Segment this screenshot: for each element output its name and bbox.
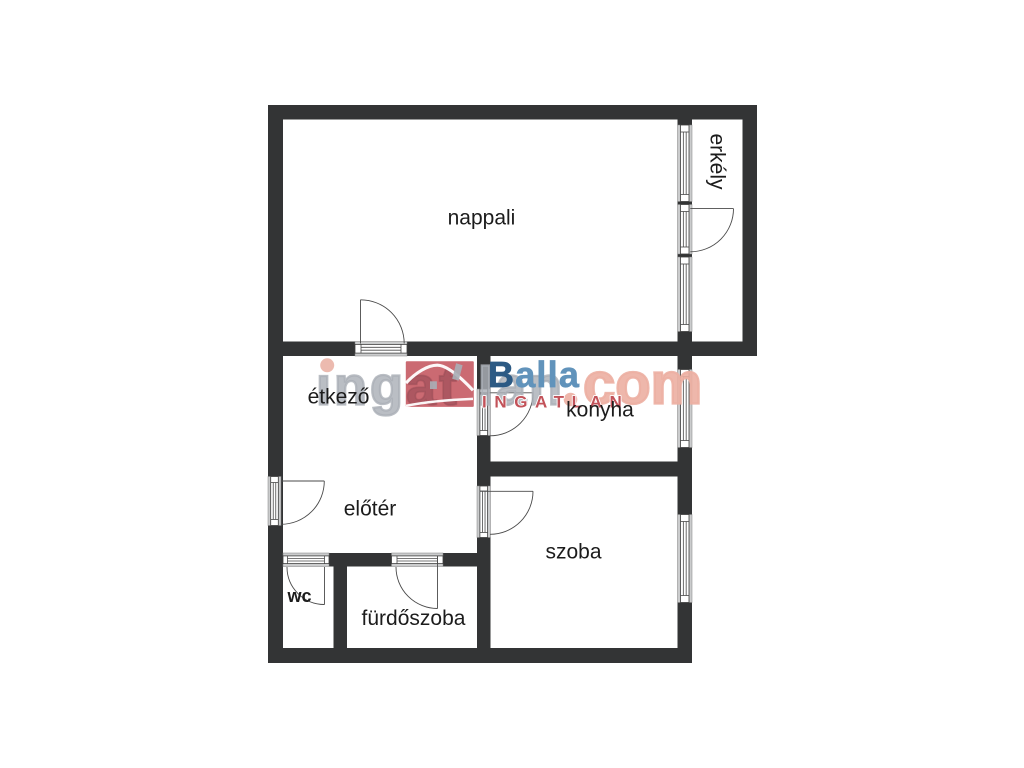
svg-text:fürdőszoba: fürdőszoba xyxy=(362,607,466,630)
svg-text:Balla: Balla xyxy=(488,354,580,395)
svg-text:konyha: konyha xyxy=(566,399,634,422)
svg-text:erkély: erkély xyxy=(705,133,728,190)
svg-text:előtér: előtér xyxy=(344,498,397,521)
svg-text:szoba: szoba xyxy=(545,541,601,564)
svg-text:étkező: étkező xyxy=(308,386,370,409)
svg-text:nappali: nappali xyxy=(448,207,516,230)
svg-text:wc: wc xyxy=(286,586,311,606)
